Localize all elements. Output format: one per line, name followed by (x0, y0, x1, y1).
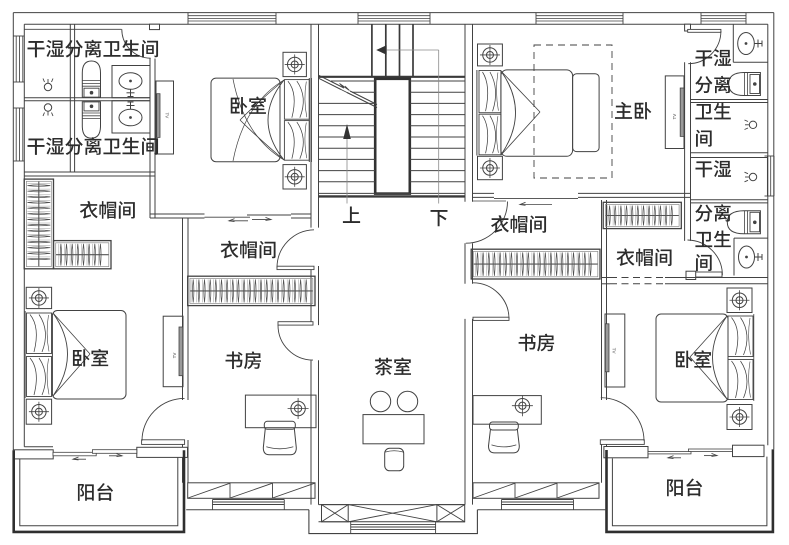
svg-text:TV: TV (672, 114, 677, 120)
svg-text:TV: TV (172, 353, 177, 359)
svg-text:TV: TV (611, 348, 616, 354)
svg-text:TV: TV (165, 113, 170, 119)
